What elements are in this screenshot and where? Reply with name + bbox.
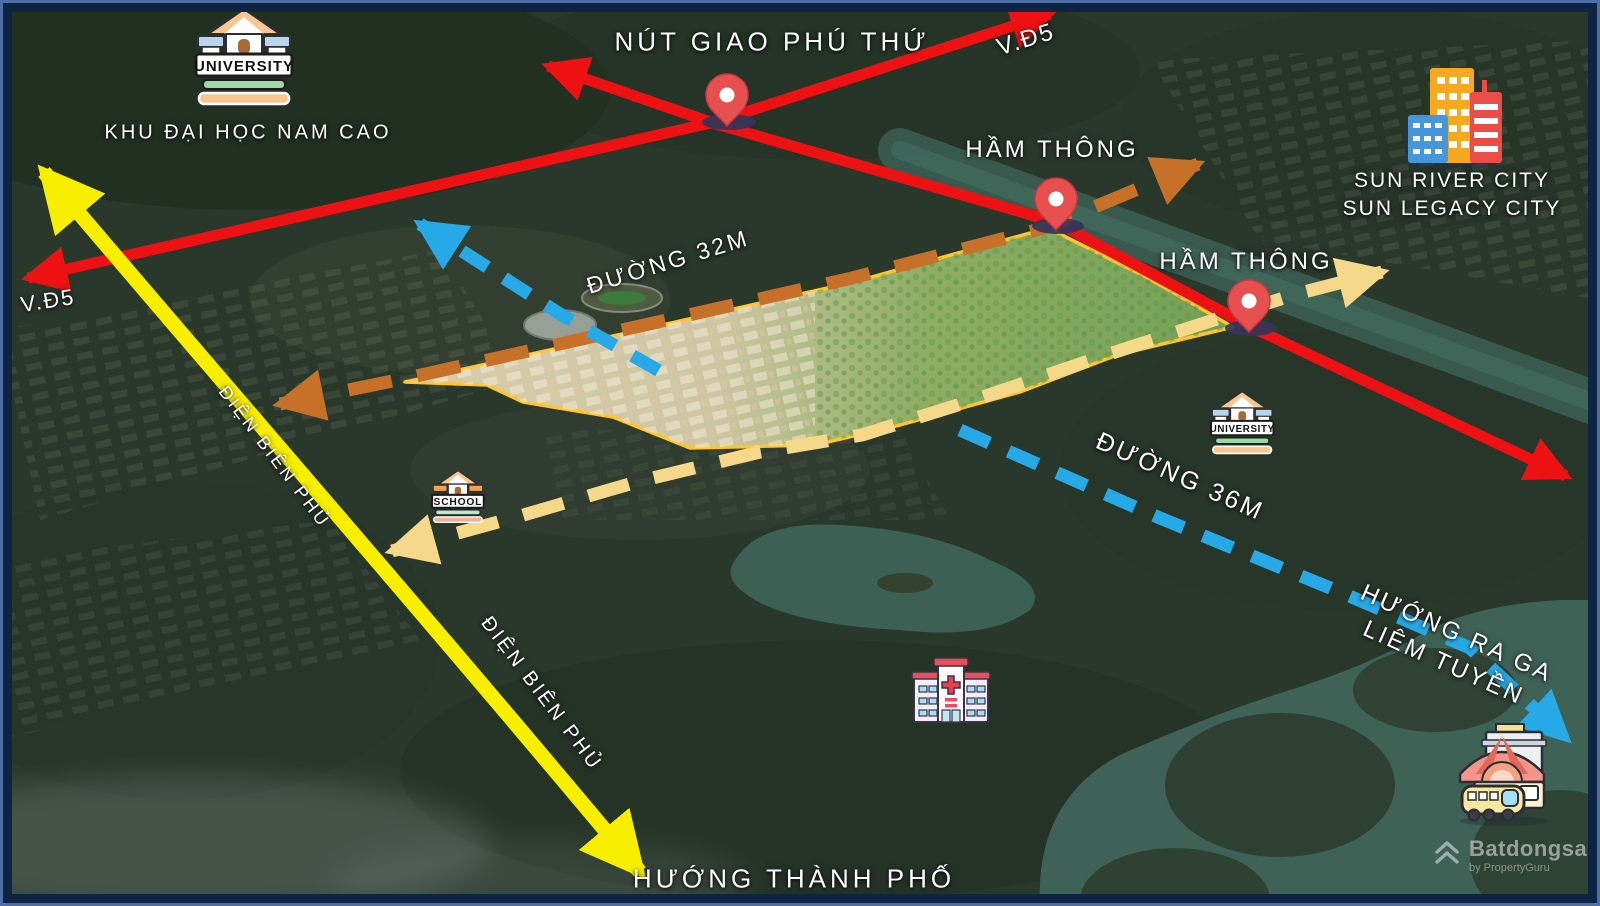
label-nut-giao-phu-thu: NÚT GIAO PHÚ THỨ [615, 27, 930, 58]
label-sun-river-city: SUN RIVER CITY [1354, 169, 1550, 193]
batdongsan-logo-icon [1432, 838, 1462, 870]
watermark: Batdongsan .com.vn by PropertyGuru [1432, 838, 1600, 874]
aerial-location-map: UNIVERSITY UNIVERSITY SCHOOL [0, 0, 1600, 906]
school-banner-text: SCHOOL [434, 497, 483, 508]
label-ham-thong-2: HẦM THÔNG [1159, 248, 1332, 276]
label-ham-thong-1: HẦM THÔNG [965, 136, 1138, 164]
label-huong-thanh-pho: HƯỚNG THÀNH PHỐ [633, 864, 955, 895]
university-banner-text: UNIVERSITY [194, 58, 294, 75]
watermark-brand: Batdongsan [1469, 838, 1600, 860]
label-khu-dai-hoc-nam-cao: KHU ĐẠI HỌC NAM CAO [104, 122, 391, 145]
watermark-byline: by PropertyGuru [1469, 863, 1600, 874]
university-banner-text: UNIVERSITY [1210, 424, 1275, 435]
label-sun-legacy-city: SUN LEGACY CITY [1343, 197, 1562, 221]
